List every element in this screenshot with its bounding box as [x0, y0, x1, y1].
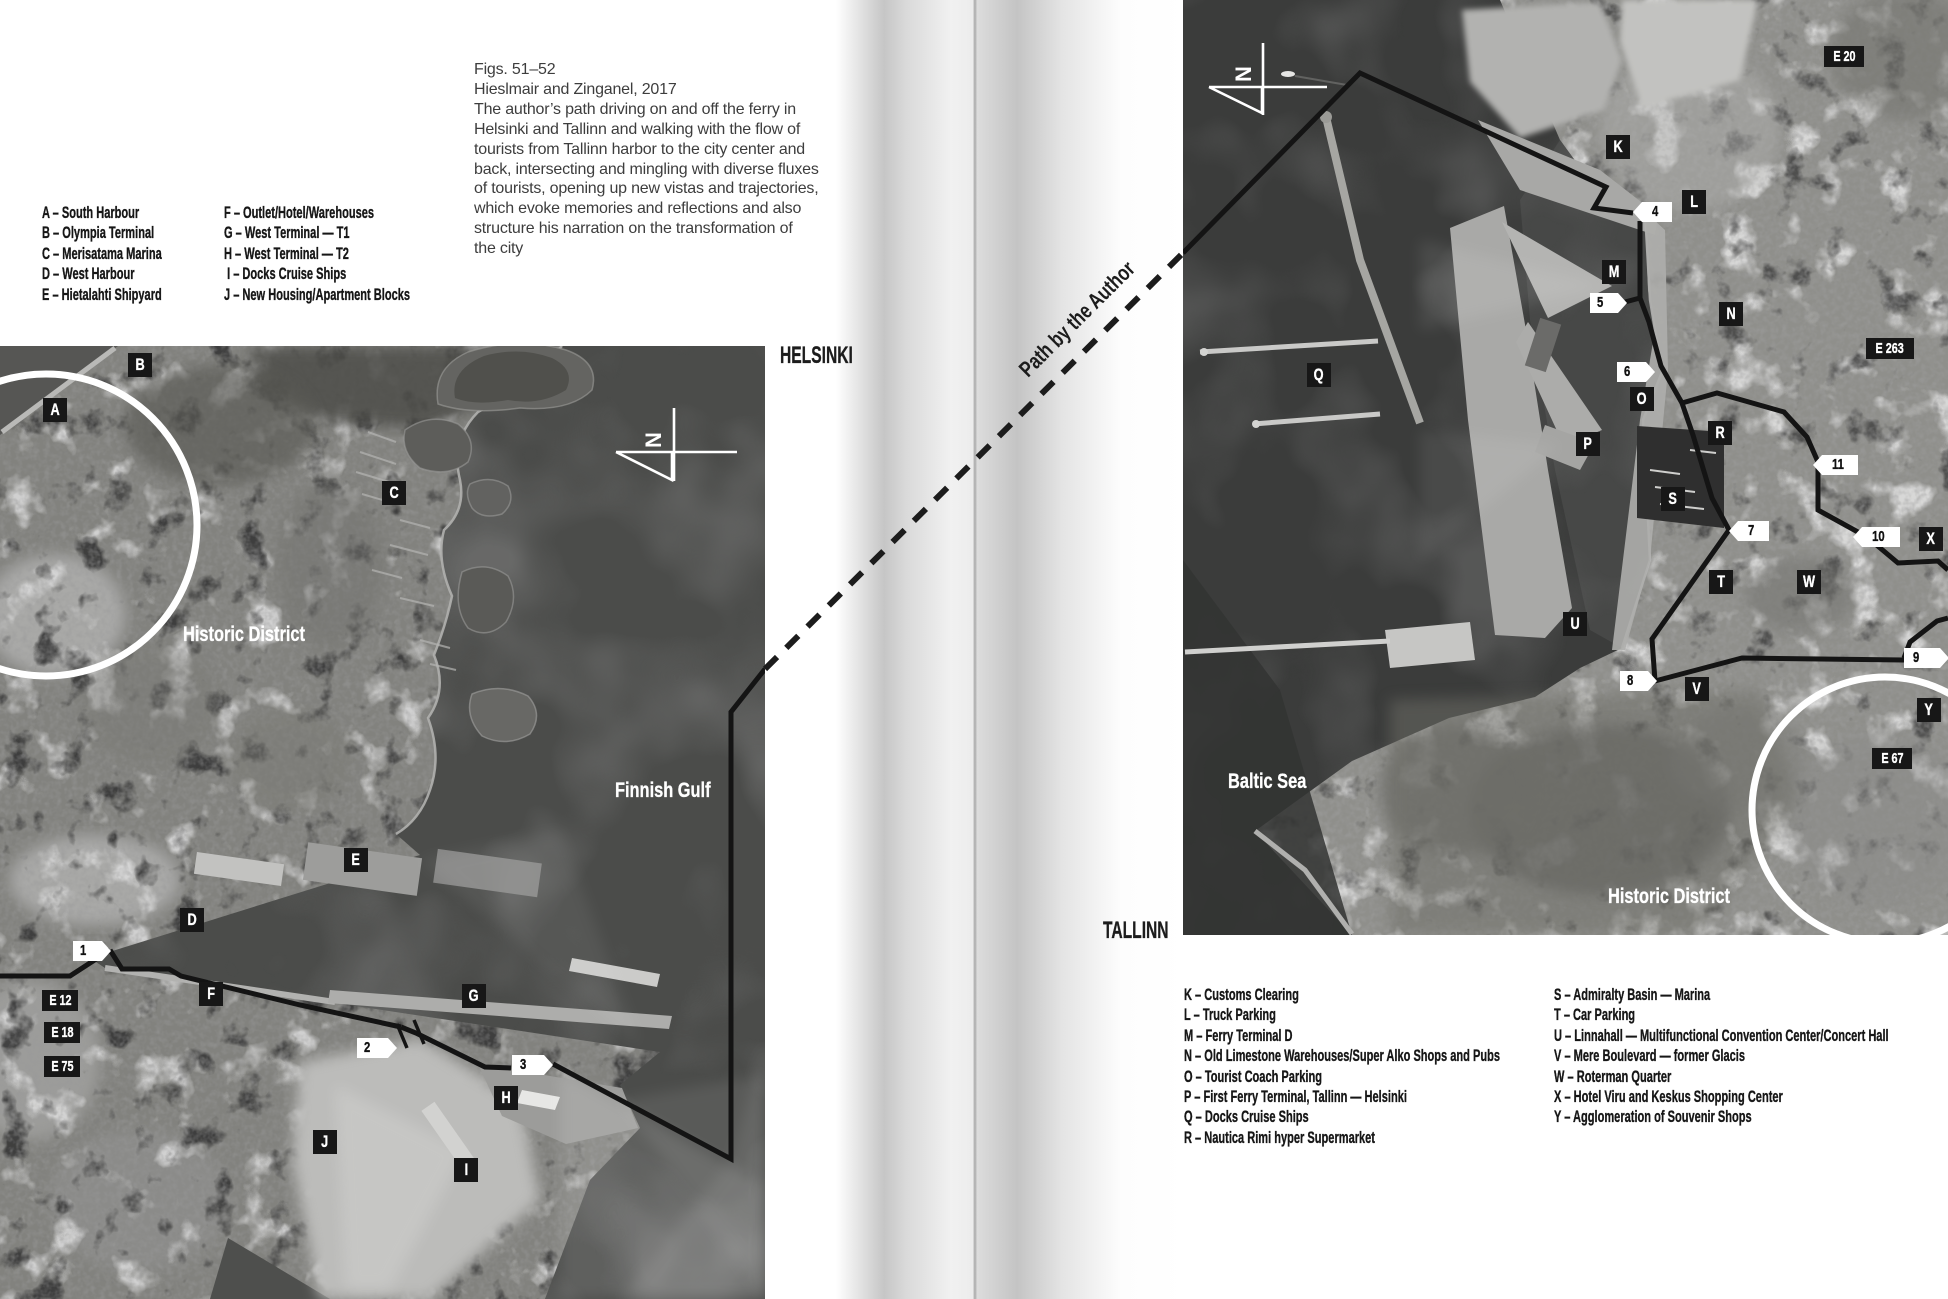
svg-text:N: N [1231, 66, 1256, 82]
svg-text:N: N [641, 432, 666, 448]
